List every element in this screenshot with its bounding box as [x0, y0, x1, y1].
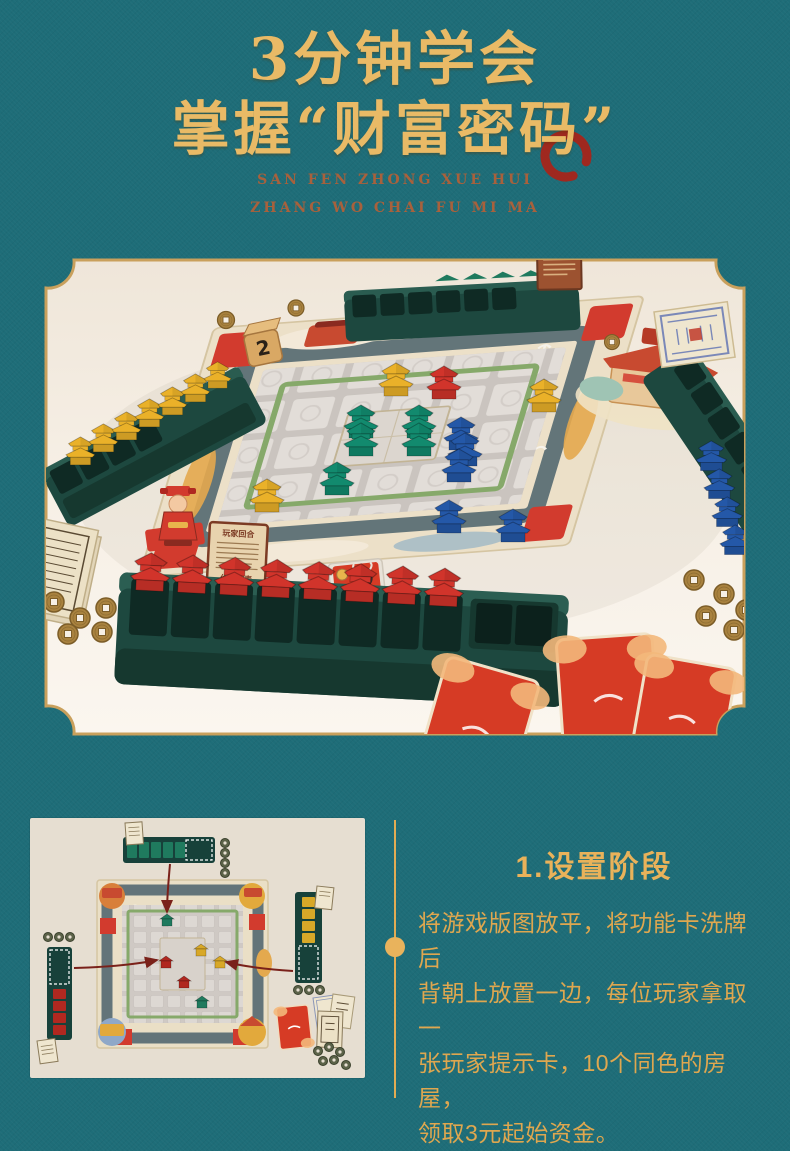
step-heading: 1.设置阶段 [418, 842, 770, 886]
diagram-top-tray [123, 822, 230, 878]
setup-diagram [30, 818, 365, 1078]
product-photo: 2 [44, 258, 746, 736]
header: 3分钟学会 掌握“财富密码” SAN FEN ZHONG XUE HUI ZHA… [0, 0, 790, 216]
setup-diagram-card [30, 818, 365, 1078]
money-note [654, 302, 735, 368]
diagram-right-tray [294, 886, 334, 995]
product-photo-scene: 2 [44, 258, 746, 736]
page-title-line1: 3分钟学会 [0, 30, 790, 88]
function-card-brown [537, 258, 582, 290]
section-divider-line [394, 820, 396, 1098]
pinyin-line1: SAN FEN ZHONG XUE HUI [0, 172, 790, 188]
diagram-coin-cluster [314, 1043, 351, 1070]
page-title-line2: 掌握“财富密码” [0, 100, 790, 158]
diagram-money-notes [313, 994, 355, 1048]
promo-page: { "header": { "title_line1": "3分钟学会", "t… [0, 0, 790, 1107]
step-body: 将游戏版图放平，将功能卡洗牌后 背朝上放置一边，每位玩家拿取一 张玩家提示卡，1… [418, 906, 770, 1151]
hint-card-title: 玩家回合 [222, 528, 255, 540]
section-divider-dot [385, 937, 405, 957]
pinyin-line2: ZHANG WO CHAI FU MI MA [0, 200, 790, 216]
diagram-left-tray [37, 933, 75, 1064]
diagram-board [97, 880, 272, 1048]
step-instructions: 1.设置阶段 将游戏版图放平，将功能卡洗牌后 背朝上放置一边，每位玩家拿取一 张… [418, 842, 770, 1151]
diagram-card-deck [273, 1003, 315, 1051]
